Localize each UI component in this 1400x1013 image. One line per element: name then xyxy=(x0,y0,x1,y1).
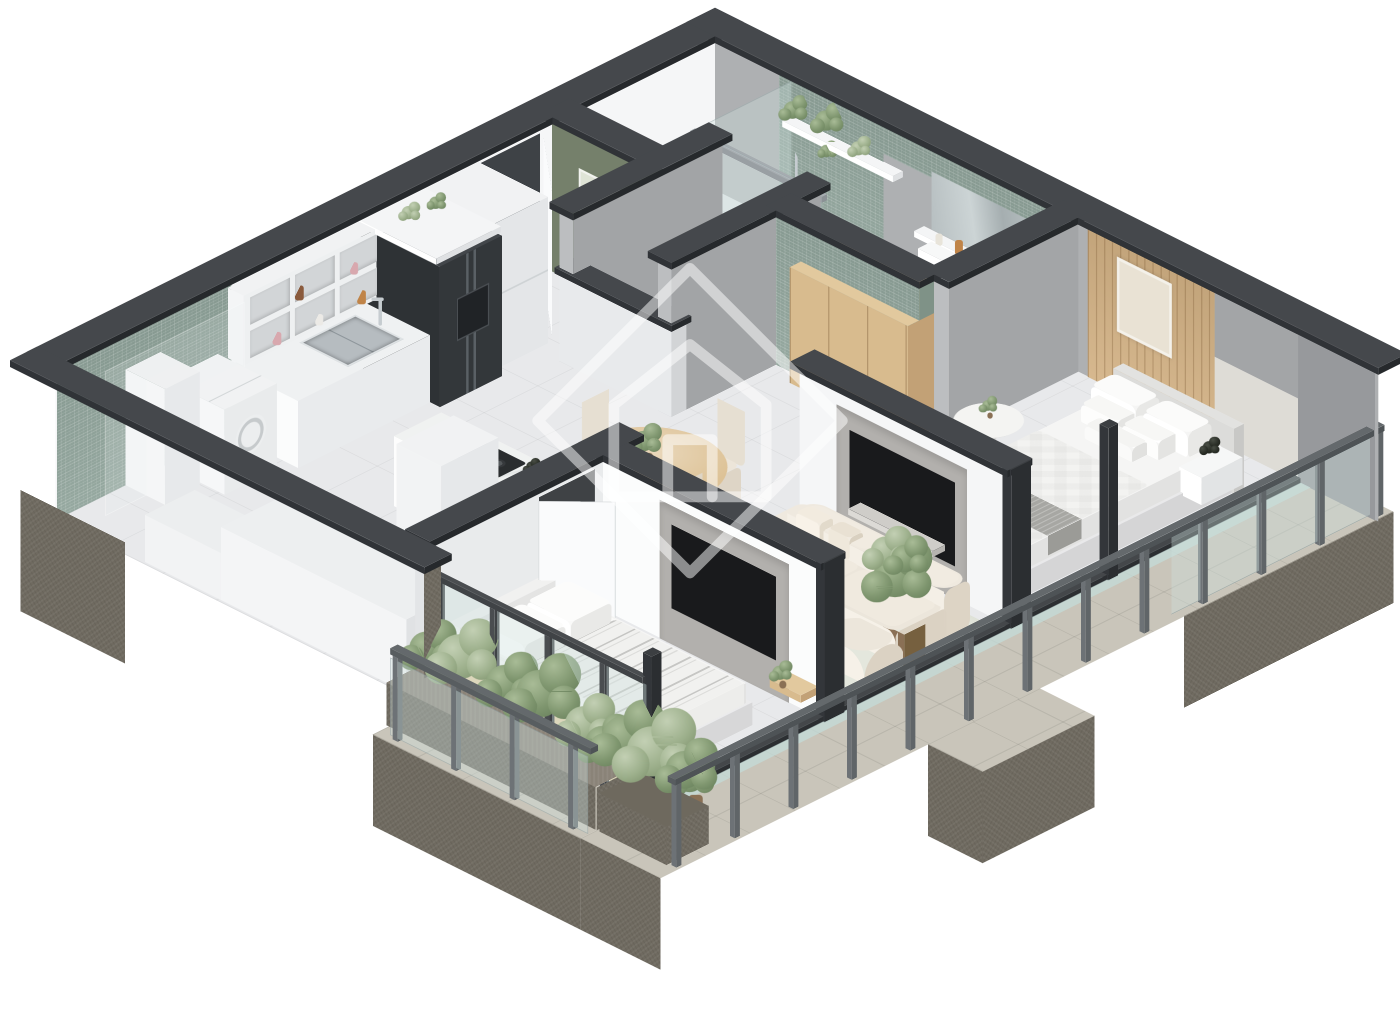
foliage-blob xyxy=(769,671,779,681)
plant-pot xyxy=(987,412,992,418)
foliage-blob xyxy=(810,118,825,133)
foliage-blob xyxy=(647,438,661,452)
foliage-blob xyxy=(778,108,791,121)
balustrade-post-se xyxy=(1378,430,1383,516)
foliage-blob xyxy=(1211,445,1220,454)
plant-pot xyxy=(779,681,786,689)
foliage-blob xyxy=(847,146,857,156)
balustrade-post-se xyxy=(910,664,915,750)
faucet-neck xyxy=(378,299,382,325)
balustrade-post-se xyxy=(735,752,740,838)
foliage-blob xyxy=(795,107,807,119)
foliage-blob xyxy=(861,146,871,156)
balustrade-post-se xyxy=(1027,606,1032,692)
foliage-blob xyxy=(829,117,843,131)
foliage-blob xyxy=(909,554,928,573)
balustrade-post-se xyxy=(852,694,857,780)
foliage-blob xyxy=(1199,446,1208,455)
foliage-blob xyxy=(612,745,649,782)
kitchen-faucet xyxy=(367,296,393,326)
foliage-blob xyxy=(426,201,435,210)
bed2-shelf-plant xyxy=(767,659,799,689)
balustrade-post-se xyxy=(969,635,974,721)
balustrade-post-se xyxy=(1320,460,1325,546)
living-tall-plant-3 xyxy=(880,533,940,590)
fridge-plant-1 xyxy=(425,191,451,216)
side-table-plant xyxy=(978,395,1003,418)
fridge-plant-2 xyxy=(396,200,426,228)
foliage-blob xyxy=(411,211,420,220)
nightstand-plant xyxy=(1197,435,1225,462)
foliage-blob xyxy=(398,211,408,221)
foliage-blob xyxy=(782,670,792,680)
balustrade-post-se xyxy=(1086,577,1091,663)
balustrade-post-se xyxy=(1261,489,1266,575)
foliage-blob xyxy=(817,150,826,159)
faucet-spout xyxy=(371,297,383,301)
balustrade-post-se xyxy=(1203,518,1208,604)
foliage-blob xyxy=(438,201,446,209)
floor-plan-render xyxy=(0,0,1400,1013)
balustrade-post-se xyxy=(1144,547,1149,633)
balustrade-post-se xyxy=(676,781,681,867)
foliage-blob xyxy=(883,555,903,575)
foliage-blob xyxy=(990,404,998,412)
foliage-blob xyxy=(979,404,987,412)
balustrade-post-se xyxy=(793,723,798,809)
